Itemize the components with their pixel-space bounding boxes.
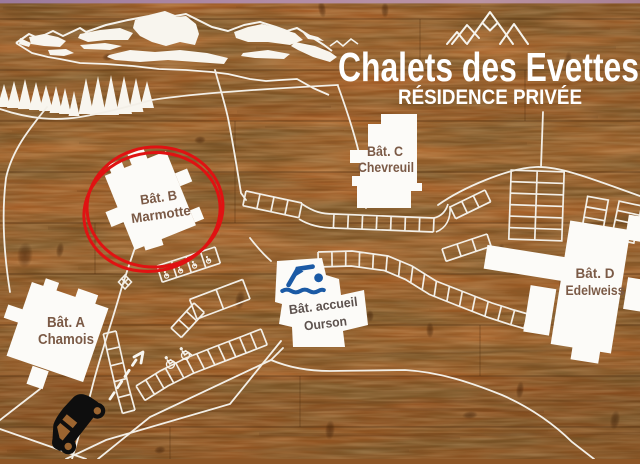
svg-text:Edelweiss: Edelweiss [566, 282, 625, 298]
svg-text:Chamois: Chamois [38, 332, 94, 348]
svg-text:Bât. A: Bât. A [47, 315, 85, 331]
svg-text:RÉSIDENCE PRIVÉE: RÉSIDENCE PRIVÉE [398, 84, 582, 109]
svg-text:Chevreuil: Chevreuil [358, 160, 414, 175]
svg-text:Bât. D: Bât. D [576, 265, 615, 281]
svg-text:Chalets des Evettes: Chalets des Evettes [338, 44, 639, 90]
svg-text:Bât. C: Bât. C [367, 144, 403, 159]
